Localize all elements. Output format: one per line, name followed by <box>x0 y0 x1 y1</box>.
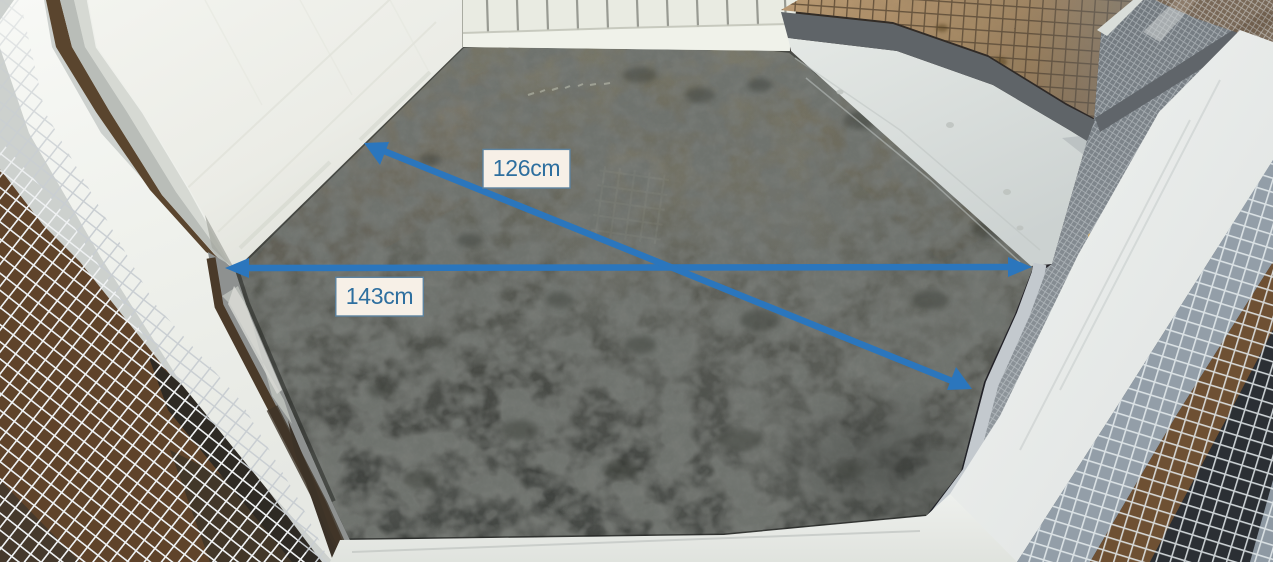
svg-text:143cm: 143cm <box>346 283 414 309</box>
svg-text:126cm: 126cm <box>493 155 561 181</box>
